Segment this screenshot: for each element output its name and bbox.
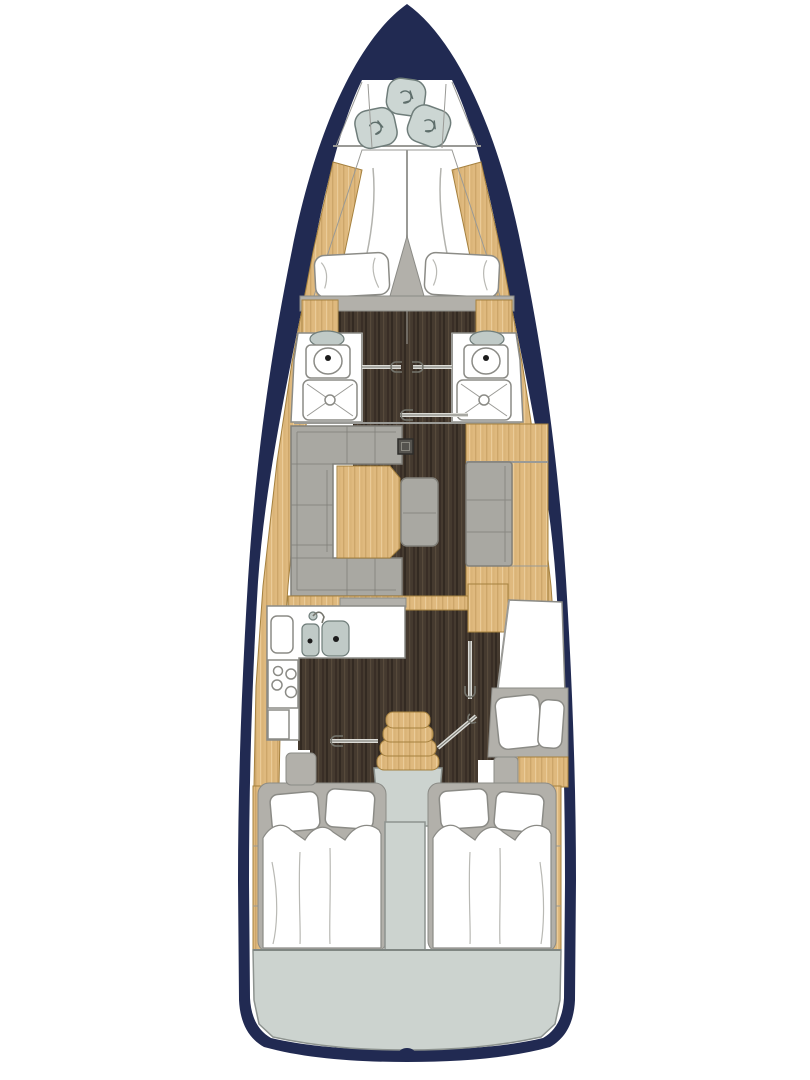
galley-stove	[268, 660, 298, 708]
engine-compartment	[385, 822, 425, 952]
port-aft-pillow-2	[325, 788, 376, 829]
port-step-block	[286, 753, 316, 785]
guest-pillow-large	[494, 694, 543, 750]
guest-pillow-small	[537, 699, 564, 749]
port-aft-cabin	[253, 753, 386, 952]
port-aft-duvet	[263, 825, 381, 948]
starboard-settee	[466, 462, 512, 566]
saloon-stool-bench	[401, 478, 438, 546]
starboard-aft-cabin	[428, 783, 561, 952]
v-berth-pillow-left	[314, 252, 390, 298]
v-berth-pillow-right	[424, 252, 500, 298]
transom-deck	[253, 950, 561, 1058]
floor-plan-canvas	[0, 0, 810, 1080]
step-1	[386, 712, 430, 728]
rudder-tick	[399, 1048, 415, 1058]
port-head	[291, 331, 362, 422]
starboard-aft-duvet	[433, 825, 551, 948]
companionway-steps	[377, 712, 439, 770]
starboard-aft-pillow-1	[439, 788, 490, 829]
port-head-shower	[303, 380, 357, 420]
starboard-head-toilet	[464, 345, 508, 378]
port-head-toilet	[306, 345, 350, 378]
guest-cabin-entry-cabinet	[468, 584, 508, 632]
saloon-table	[337, 466, 400, 558]
galley-lower-cabinet	[268, 710, 289, 739]
cutting-board	[271, 616, 293, 653]
starboard-head	[452, 331, 523, 422]
starboard-furniture	[466, 424, 548, 602]
yacht-floor-plan	[0, 0, 810, 1080]
mast-post	[398, 439, 413, 454]
